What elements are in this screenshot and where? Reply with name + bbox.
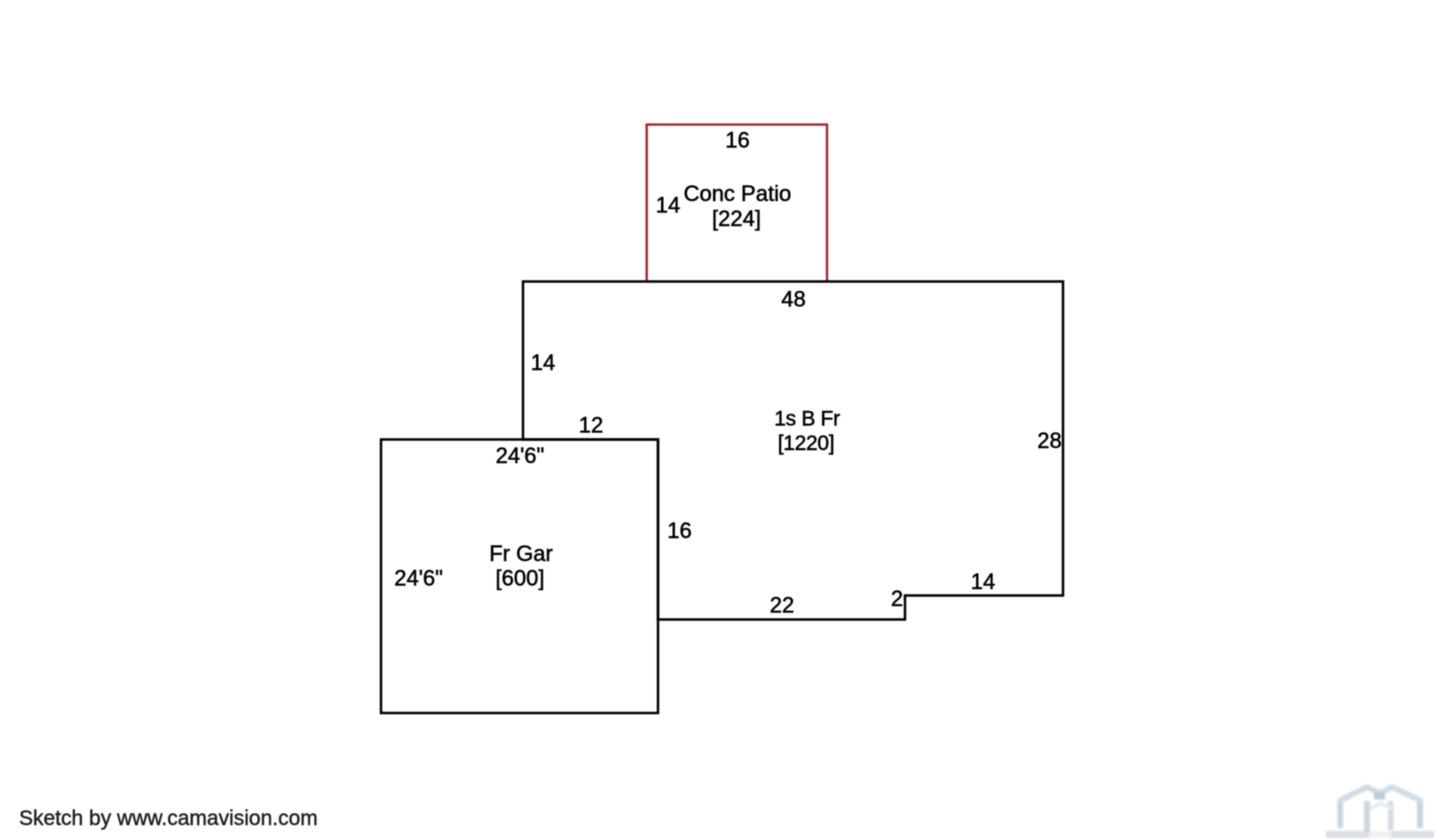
svg-text:[1220]: [1220]	[778, 432, 835, 455]
svg-text:2: 2	[891, 586, 903, 611]
svg-text:Fr Gar: Fr Gar	[489, 541, 553, 566]
svg-text:[600]: [600]	[496, 566, 545, 591]
svg-text:48: 48	[781, 287, 805, 312]
svg-text:Conc Patio: Conc Patio	[684, 181, 792, 206]
svg-text:24'6": 24'6"	[496, 443, 545, 468]
svg-text:12: 12	[579, 413, 603, 438]
svg-text:Sketch by www.camavision.com: Sketch by www.camavision.com	[19, 807, 318, 830]
svg-text:16: 16	[725, 128, 749, 153]
svg-text:[224]: [224]	[712, 206, 761, 231]
svg-text:16: 16	[667, 518, 691, 543]
svg-text:24'6": 24'6"	[394, 566, 443, 591]
svg-text:14: 14	[656, 193, 680, 218]
svg-text:22: 22	[770, 593, 794, 618]
svg-text:14: 14	[971, 569, 995, 594]
svg-text:28: 28	[1037, 428, 1061, 453]
svg-text:1s B Fr: 1s B Fr	[774, 408, 840, 431]
svg-text:14: 14	[531, 350, 555, 375]
